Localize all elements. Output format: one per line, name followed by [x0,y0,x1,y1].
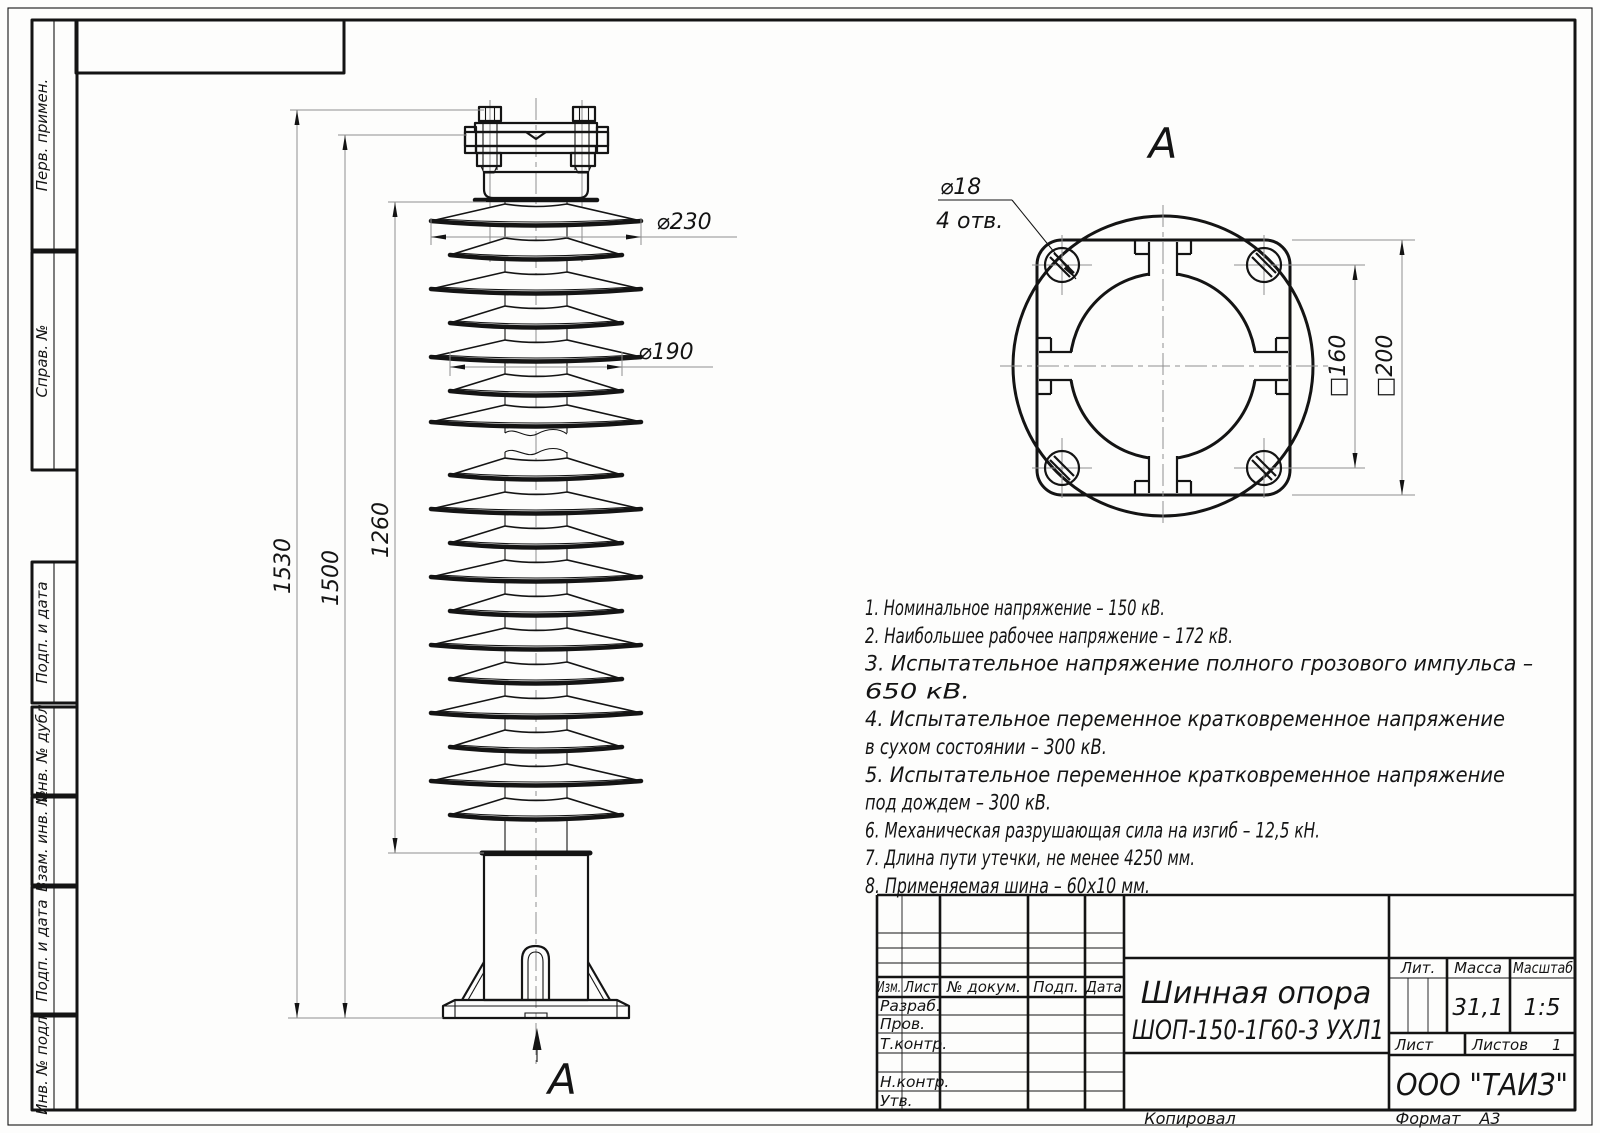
tech-line: 3. Испытательное напряжение полного гроз… [865,652,1533,677]
dim-1500-label: 1500 [319,550,344,606]
view-a-dimensions: □160 □200 [1283,240,1415,495]
tech-requirements: 1. Номинальное напряжение – 150 кВ.2. На… [865,596,1533,899]
part-title-line1: Шинная опора [1141,976,1372,1011]
tech-line: под дождем – 300 кВ. [865,791,1051,816]
mass-value: 31,1 [1452,995,1503,1021]
scale-value: 1:5 [1523,995,1560,1021]
format-value: А3 [1478,1109,1500,1128]
view-arrow-letter: А [545,1055,577,1104]
tech-line: 650 кВ. [865,679,970,704]
margin-strip-label: Подп. и дата [33,899,51,1001]
hole-dia-label: ⌀18 [940,175,981,200]
row-tkontr: Т.контр. [880,1035,947,1053]
col-list: Лист [903,978,939,996]
part-title-line2: ШОП-150-1Г60-3 УХЛ1 [1132,1015,1384,1046]
view-a: А [936,119,1415,528]
margin-strip-label: Перв. примен. [33,79,51,192]
view-direction-arrow: А [537,1032,577,1104]
tech-line: 5. Испытательное переменное кратковремен… [865,763,1505,788]
tech-line: 1. Номинальное напряжение – 150 кВ. [865,596,1165,621]
scale-label: Масштаб [1513,959,1573,977]
dim-200-label: □200 [1373,335,1398,398]
row-prov: Пров. [880,1015,925,1033]
row-utv: Утв. [880,1092,913,1110]
margin-strip-label: Справ. № [33,325,51,398]
format-label: Формат [1396,1109,1462,1128]
view-a-title: А [1146,119,1178,168]
dim-dia190-label: ⌀190 [638,340,693,365]
margin-strip-label: Взам. инв. № [33,790,51,892]
tech-line: 6. Механическая разрушающая сила на изги… [865,818,1320,843]
engineering-drawing: Перв. примен.Справ. №Подп. и датаИнв. № … [0,0,1600,1133]
col-doc: № докум. [946,978,1021,996]
sheet-label: Лист [1394,1036,1434,1054]
margin-strip-label: Инв. № дубл. [33,700,51,803]
tech-line: в сухом состоянии – 300 кВ. [865,735,1107,760]
dim-1530-label: 1530 [271,538,296,594]
margin-strips: Перв. примен.Справ. №Подп. и датаИнв. № … [32,20,77,1115]
designation-box [76,20,344,73]
col-izm: Изм. [877,978,901,996]
tech-line: 4. Испытательное переменное кратковремен… [865,707,1505,732]
dim-1260-label: 1260 [369,502,394,558]
main-view: 1530 1500 1260 ⌀230 ⌀190 А [271,98,737,1104]
copied-label: Копировал [1144,1109,1235,1128]
col-data: Дата [1085,978,1122,996]
sheets-value: 1 [1552,1036,1562,1054]
sheets-label: Листов [1471,1036,1528,1054]
hole-count-label: 4 отв. [936,209,1003,234]
title-block: Изм. Лист № докум. Подп. Дата Разраб. Пр… [877,895,1575,1110]
margin-strip-label: Подп. и дата [33,581,51,683]
tech-line: 7. Длина пути утечки, не менее 4250 мм. [865,846,1195,871]
row-razrab: Разраб. [880,997,941,1015]
drawing-sheet: Перв. примен.Справ. №Подп. и датаИнв. № … [0,0,1600,1133]
row-nkontr: Н.контр. [880,1073,949,1091]
company-name: ООО "ТАИЗ" [1396,1068,1568,1103]
dim-160-label: □160 [1326,335,1351,398]
margin-strip-label: Инв. № подл. [33,1011,51,1114]
tech-line: 2. Наибольшее рабочее напряжение – 172 к… [865,624,1233,649]
dim-dia230-label: ⌀230 [656,210,711,235]
mass-label: Масса [1454,959,1502,977]
lit-label: Лит. [1400,959,1436,977]
col-podp: Подп. [1033,978,1078,996]
